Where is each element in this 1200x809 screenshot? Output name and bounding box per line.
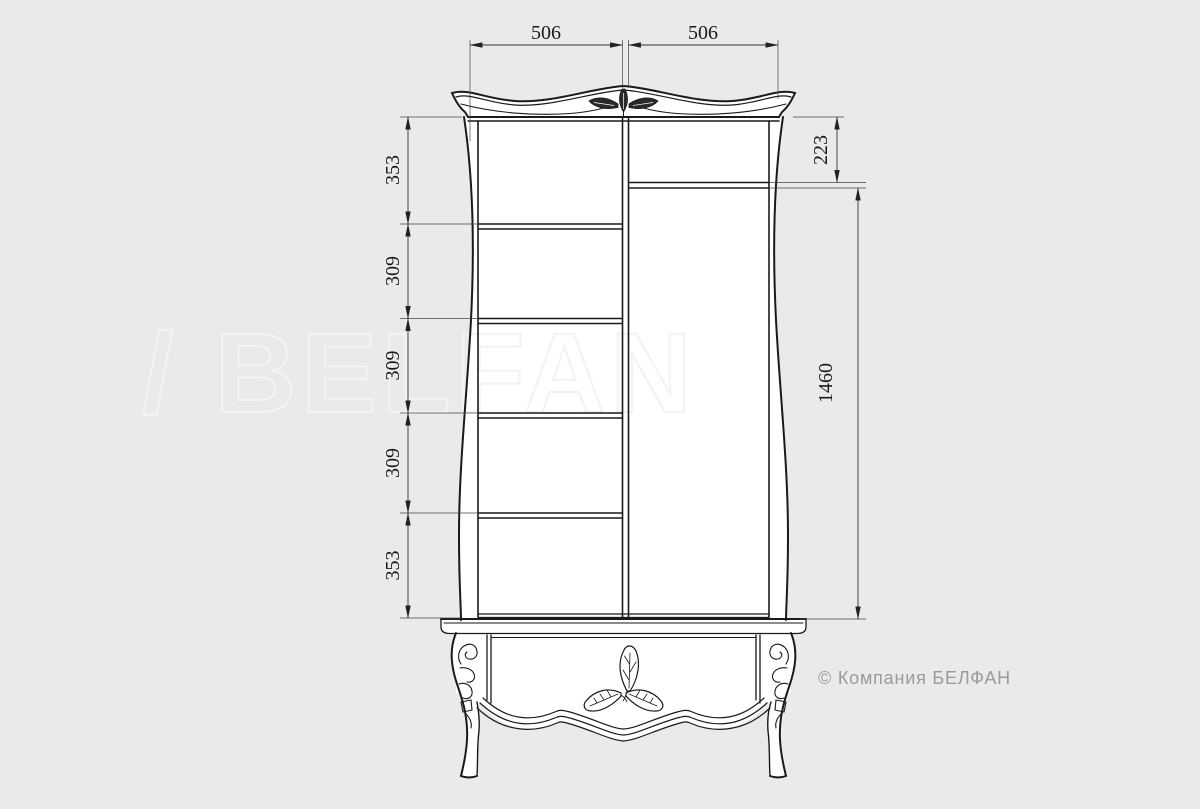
dim-label-top-left: 506 xyxy=(531,22,561,44)
copyright-label: © Компания БЕЛФАН xyxy=(818,668,1011,688)
dim-label-left-2: 309 xyxy=(382,256,404,286)
drawing-page: / BELFAN xyxy=(0,0,1200,809)
dim-label-left-3: 309 xyxy=(382,351,404,381)
dim-label-left-4: 309 xyxy=(382,448,404,478)
dim-label-left-1: 353 xyxy=(382,155,404,185)
dim-label-right-height: 1460 xyxy=(815,363,837,403)
dim-label-left-5: 353 xyxy=(382,551,404,581)
dim-label-right-top: 223 xyxy=(810,135,832,165)
wardrobe-dimension-drawing: / BELFAN xyxy=(0,0,1200,809)
belfan-watermark: / BELFAN xyxy=(142,310,697,436)
dim-label-top-right: 506 xyxy=(688,22,718,44)
